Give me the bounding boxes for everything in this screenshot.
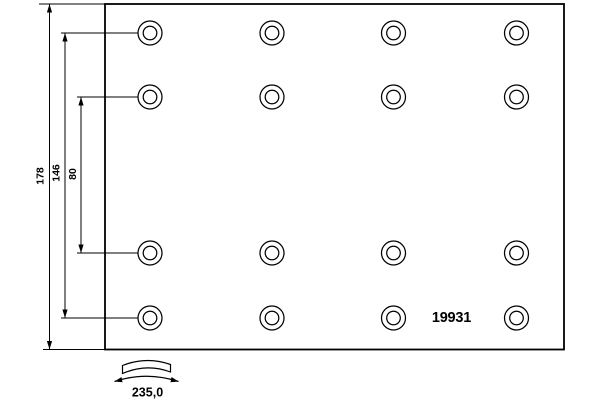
rivet-hole (382, 241, 406, 265)
rivet-hole (505, 21, 529, 45)
arc-dimension-arrow-line (115, 376, 179, 381)
rivet-hole (505, 241, 529, 265)
rivet-hole (260, 241, 284, 265)
arrowhead-up-icon (78, 97, 83, 106)
rivet-hole (138, 306, 162, 330)
rivet-hole (382, 306, 406, 330)
rivet-hole-inner-circle (265, 90, 279, 104)
drawing-canvas: 178 146 80 19931 235,0 (0, 0, 600, 400)
rivet-hole (505, 85, 529, 109)
dimension-label-overall-height: 178 (35, 167, 47, 185)
rivet-hole-inner-circle (387, 311, 401, 325)
arc-width-label: 235,0 (132, 386, 163, 400)
arrowhead-right-icon (171, 377, 179, 382)
rivet-hole (260, 21, 284, 45)
rivet-hole-inner-circle (510, 26, 524, 40)
rivet-hole (260, 306, 284, 330)
dimension-label-outer-hole-span: 146 (51, 164, 63, 182)
rivet-hole-inner-circle (387, 246, 401, 260)
rivet-hole (138, 85, 162, 109)
rivet-hole (260, 85, 284, 109)
dimension-outer-hole-span: 146 (51, 33, 68, 318)
rivet-hole-inner-circle (510, 246, 524, 260)
dimension-label-inner-hole-span: 80 (67, 168, 79, 180)
rivet-hole-inner-circle (143, 311, 157, 325)
rivet-hole-inner-circle (387, 90, 401, 104)
technical-drawing: 178 146 80 19931 235,0 (0, 0, 600, 400)
arrowhead-down-icon (78, 245, 83, 254)
lining-plate-outline (105, 4, 564, 350)
rivet-hole (138, 21, 162, 45)
arrowhead-down-icon (47, 341, 52, 350)
arrowhead-left-icon (115, 377, 123, 382)
dimension-overall-height: 178 (35, 4, 53, 350)
rivet-hole (505, 306, 529, 330)
arc-section-symbol: 235,0 (115, 360, 179, 399)
rivet-hole-inner-circle (510, 90, 524, 104)
rivet-hole (138, 241, 162, 265)
rivet-hole-inner-circle (143, 246, 157, 260)
rivet-hole-inner-circle (510, 311, 524, 325)
rivet-hole-inner-circle (265, 26, 279, 40)
rivet-hole-inner-circle (143, 26, 157, 40)
curved-lining-section-icon (123, 360, 171, 373)
rivet-hole (382, 85, 406, 109)
arrowhead-down-icon (62, 310, 67, 319)
arrowhead-up-icon (47, 4, 52, 13)
rivet-hole-inner-circle (265, 246, 279, 260)
rivet-hole-inner-circle (387, 26, 401, 40)
rivet-hole-inner-circle (143, 90, 157, 104)
rivet-hole-inner-circle (265, 311, 279, 325)
arrowhead-up-icon (62, 33, 67, 42)
dimension-inner-hole-span: 80 (67, 97, 84, 253)
part-number: 19931 (432, 310, 471, 326)
rivet-hole (382, 21, 406, 45)
